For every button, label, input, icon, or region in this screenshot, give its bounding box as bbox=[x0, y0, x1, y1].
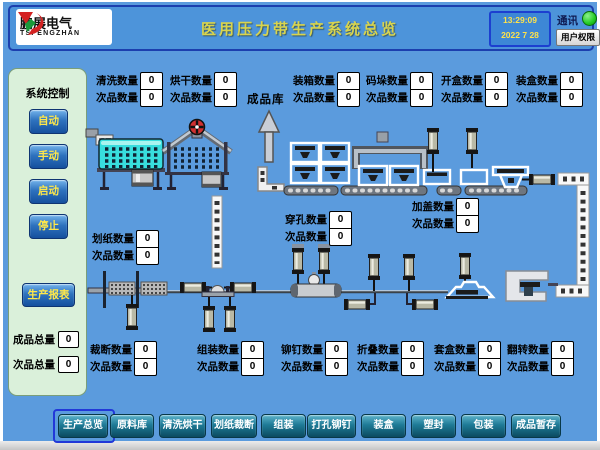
counter-casing: 套盒数量次品数量 00 bbox=[434, 341, 501, 376]
empty-box bbox=[461, 170, 487, 184]
assembly-station bbox=[180, 282, 256, 332]
corner-conveyor-left bbox=[258, 167, 284, 191]
warehouse-label: 成品库 bbox=[247, 91, 285, 107]
counter-punching: 穿孔数量次品数量 00 bbox=[285, 211, 352, 246]
tab-packing[interactable]: 包装 bbox=[461, 414, 506, 438]
tab-boxing[interactable]: 装盒 bbox=[361, 414, 406, 438]
counter-drying: 烘干数量次品数量 00 bbox=[170, 72, 237, 107]
counter-palletizing: 码垛数量次品数量 00 bbox=[366, 72, 433, 107]
warehouse-arrow-icon bbox=[259, 111, 279, 162]
counter-flipping: 翻转数量次品数量 00 bbox=[507, 341, 574, 376]
counter-box-filling: 装盒数量次品数量 00 bbox=[516, 72, 583, 107]
flipping-station bbox=[506, 271, 558, 301]
counter-boxing: 装箱数量次品数量 00 bbox=[293, 72, 360, 107]
product-stacks bbox=[291, 143, 349, 183]
tab-production-overview[interactable]: 生产总览 bbox=[58, 414, 108, 438]
counter-paper-scoring: 划纸数量次品数量 00 bbox=[92, 230, 159, 265]
counter-assembly: 组装数量次品数量 00 bbox=[197, 341, 264, 376]
counter-cutting: 裁断数量次品数量 00 bbox=[90, 341, 157, 376]
tab-punch-rivet[interactable]: 打孔铆钉 bbox=[307, 414, 356, 438]
tab-raw-material[interactable]: 原料库 bbox=[110, 414, 154, 438]
folding-station bbox=[344, 254, 438, 310]
counter-folding: 折叠数量次品数量 00 bbox=[357, 341, 424, 376]
drying-machine bbox=[163, 120, 231, 191]
tab-storage[interactable]: 成品暂存 bbox=[511, 414, 561, 438]
tab-wash-dry[interactable]: 清洗烘干 bbox=[159, 414, 206, 438]
counter-washing: 清洗数量次品数量 00 bbox=[96, 72, 163, 107]
tab-assembly[interactable]: 组装 bbox=[261, 414, 306, 438]
casing-station bbox=[446, 253, 493, 299]
pneumatic-cylinders-top bbox=[427, 128, 478, 172]
boxes-on-belt bbox=[359, 166, 450, 185]
vertical-conveyor bbox=[212, 196, 222, 268]
tab-sealing[interactable]: 塑封 bbox=[411, 414, 456, 438]
capping-station bbox=[493, 167, 528, 187]
gantry-crane bbox=[356, 132, 424, 169]
riveting-station bbox=[291, 244, 341, 297]
tab-score-cut[interactable]: 划纸裁断 bbox=[211, 414, 257, 438]
counter-box-opening: 开盒数量次品数量 00 bbox=[441, 72, 508, 107]
conveyor-belt bbox=[284, 186, 527, 195]
cutting-station bbox=[88, 271, 167, 330]
corner-conveyor-right bbox=[556, 173, 589, 297]
washing-machine bbox=[97, 139, 165, 190]
counter-riveting: 铆钉数量次品数量 00 bbox=[281, 341, 348, 376]
counter-capping: 加盖数量次品数量 00 bbox=[412, 198, 479, 233]
hmi-screen: 鹏展电气 TSPENGZHAN 医用压力带生产系统总览 13:29:09 202… bbox=[0, 0, 600, 450]
